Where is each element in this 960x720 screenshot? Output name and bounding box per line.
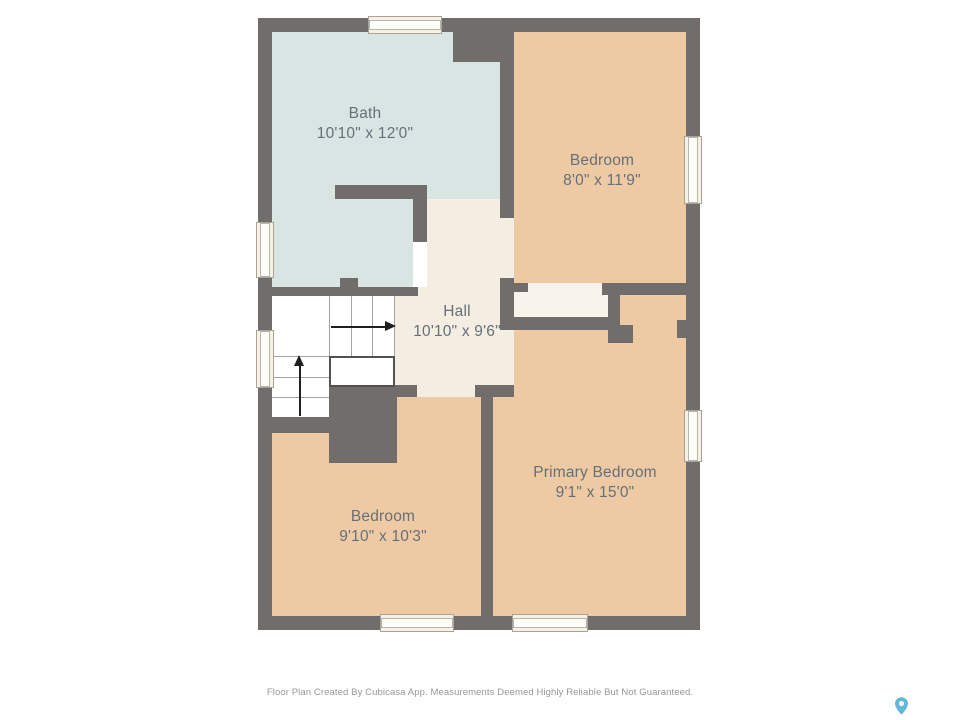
disclaimer-text: Floor Plan Created By Cubicasa App. Meas…: [0, 687, 960, 698]
location-pin-icon: [895, 697, 908, 720]
bedroom-bottom-room-label: Bedroom 9'10" x 10'3": [303, 507, 463, 547]
room-dims-primary: 9'1" x 15'0": [495, 483, 695, 503]
window-right-primary: [684, 410, 702, 462]
room-dims-hall: 10'10" x 9'6": [377, 322, 537, 342]
wall-bath-interior-h: [335, 185, 427, 199]
wall-stairs-block: [329, 387, 397, 463]
hall-room-label: Hall 10'10" x 9'6": [377, 302, 537, 342]
wall-under-stairs: [258, 417, 329, 433]
wall-bath-bottom: [272, 287, 418, 296]
wall-bottom: [258, 616, 700, 630]
room-name-hall: Hall: [377, 302, 537, 322]
bath-door-opening: [413, 242, 427, 287]
room-name-bedroom-bottom: Bedroom: [303, 507, 463, 527]
stair-tread-line: [329, 295, 330, 356]
room-dims-bedroom-top: 8'0" x 11'9": [512, 171, 692, 191]
wall-bath-interior-v: [413, 199, 427, 242]
wall-door-post: [340, 278, 358, 287]
bedroom-top-room-label: Bedroom 8'0" x 11'9": [512, 151, 692, 191]
room-name-bath: Bath: [285, 104, 445, 124]
wall-right-stub: [677, 320, 686, 338]
wall-closet-stub-left: [513, 283, 528, 292]
room-dims-bedroom-bottom: 9'10" x 10'3": [303, 527, 463, 547]
floor-plan-page: Bath 10'10" x 12'0" Bedroom 8'0" x 11'9"…: [0, 0, 960, 720]
primary-bedroom-room-label: Primary Bedroom 9'1" x 15'0": [495, 463, 695, 503]
stairs-direction-arrow-up: [299, 364, 301, 416]
wall-hall-bottom-left: [395, 385, 417, 397]
bath-floor: [272, 32, 427, 287]
wall-right: [686, 18, 700, 630]
window-bottom-primary: [512, 614, 588, 632]
wall-bath-notch: [453, 32, 500, 62]
window-left-lower: [256, 330, 274, 388]
room-dims-bath: 10'10" x 12'0": [285, 124, 445, 144]
stairs-arrowhead-up: [294, 355, 304, 366]
wall-top: [258, 18, 700, 32]
room-name-primary: Primary Bedroom: [495, 463, 695, 483]
bath-room-label: Bath 10'10" x 12'0": [285, 104, 445, 144]
wall-left: [258, 18, 272, 630]
wall-bedrooms-divider: [481, 395, 493, 616]
stair-landing-box: [329, 356, 395, 387]
window-top: [368, 16, 442, 34]
wall-primary-door-post: [608, 325, 633, 343]
window-left-upper: [256, 222, 274, 278]
window-bottom-bedroom: [380, 614, 454, 632]
floor-plan: Bath 10'10" x 12'0" Bedroom 8'0" x 11'9"…: [0, 0, 960, 720]
room-name-bedroom-top: Bedroom: [512, 151, 692, 171]
